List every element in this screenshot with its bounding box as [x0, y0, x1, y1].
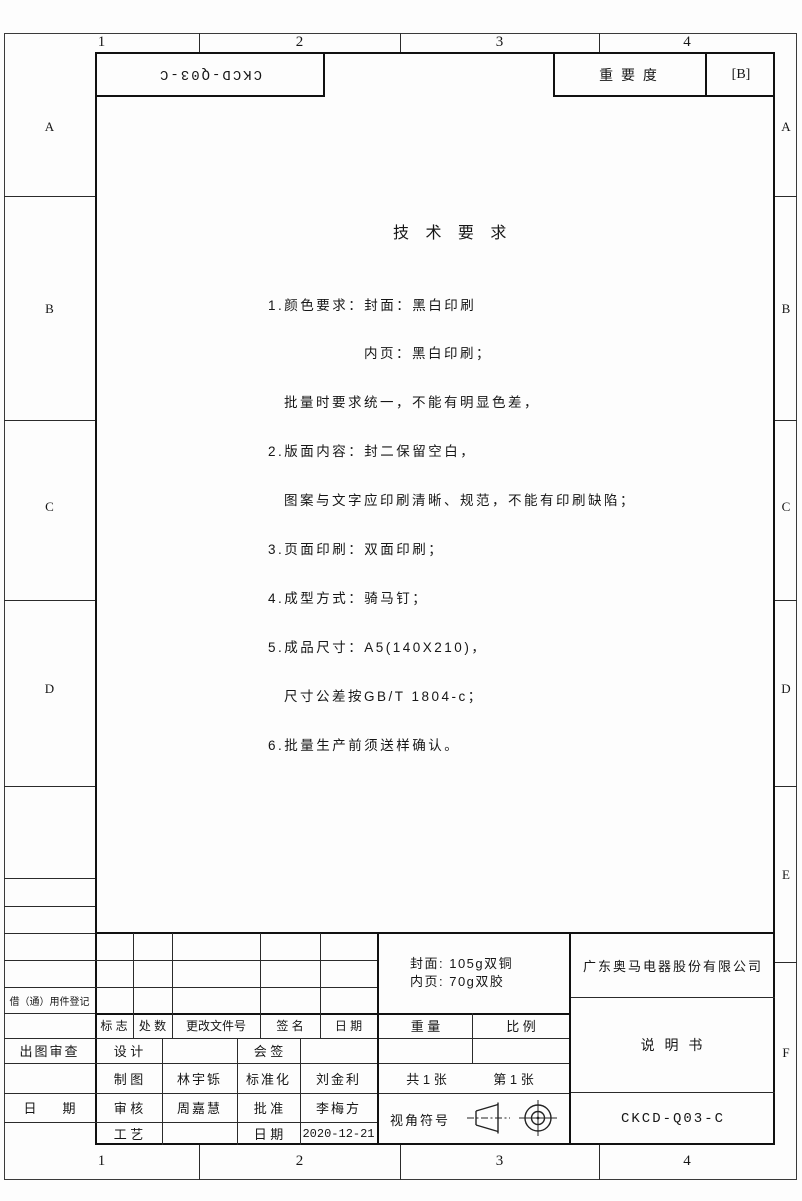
rev-col-sign: 签 名 — [260, 1013, 320, 1038]
scale-label: 比 例 — [473, 1013, 569, 1038]
rev-col-docno: 更改文件号 — [172, 1013, 260, 1038]
tech-line: 4.成型方式：骑马钉； — [268, 591, 636, 607]
standardize-label: 标准化 — [237, 1063, 300, 1093]
grid-line — [775, 420, 797, 421]
tech-line: 尺寸公差按GB/T 1804-c； — [268, 689, 636, 705]
design-signature — [162, 1038, 237, 1063]
countersign-signature — [300, 1038, 377, 1063]
grid-line — [4, 906, 95, 907]
grid-line — [4, 600, 95, 601]
zone-number-top: 2 — [199, 33, 400, 52]
zone-number-bottom: 4 — [599, 1145, 775, 1177]
rev-col-date: 日 期 — [320, 1013, 377, 1038]
paper-cover-spec: 封面: 105g双铜 — [410, 955, 513, 973]
grid-line — [4, 1013, 95, 1014]
zone-letter-right: F — [775, 1044, 797, 1062]
process-signature — [162, 1122, 237, 1145]
grid-line — [775, 786, 797, 787]
zone-number-bottom: 3 — [400, 1145, 599, 1177]
document-title: 说 明 书 — [571, 997, 775, 1092]
tech-line: 5.成品尺寸：A5(140X210)， — [268, 640, 636, 656]
drawing-sheet: 1 2 3 4 1 2 3 4 A B C D 借（通）用件登记 出图审查 日 … — [0, 0, 802, 1201]
grid-line — [775, 600, 797, 601]
grid-line — [377, 933, 379, 1145]
zone-number-top: 1 — [4, 33, 199, 52]
rev-col-count: 处 数 — [133, 1013, 172, 1038]
tech-line: 3.页面印刷：双面印刷； — [268, 542, 636, 558]
importance-label: 重 要 度 — [553, 52, 705, 97]
countersign-label: 会 签 — [237, 1038, 300, 1063]
check-signature: 周嘉慧 — [162, 1093, 237, 1122]
tech-line: 图案与文字应印刷清晰、规范，不能有印刷缺陷； — [268, 493, 636, 509]
zone-number-top: 3 — [400, 33, 599, 52]
paper-inner-spec: 内页: 70g双胶 — [410, 973, 504, 991]
process-label: 工 艺 — [95, 1122, 162, 1145]
grid-line — [4, 960, 95, 961]
inverted-doc-code: CKCD-Q03-C — [95, 52, 325, 97]
weight-label: 重 量 — [379, 1013, 472, 1038]
zone-letter-right: E — [775, 866, 797, 884]
draft-signature: 林宇铄 — [162, 1063, 237, 1093]
grid-line — [775, 962, 797, 963]
company-name: 广东奥马电器股份有限公司 — [571, 933, 775, 997]
document-code: CKCD-Q03-C — [571, 1092, 775, 1145]
grid-line — [95, 960, 377, 961]
approve-signature: 李梅方 — [300, 1093, 377, 1122]
zone-letter-right: C — [775, 498, 797, 516]
tech-line: 内页：黑白印刷； — [268, 346, 636, 362]
check-label: 审 核 — [95, 1093, 162, 1122]
tech-line: 1.颜色要求：封面：黑白印刷 — [268, 298, 636, 314]
grid-line — [4, 420, 95, 421]
tech-line: 批量时要求统一，不能有明显色差， — [268, 395, 636, 411]
tech-requirements-title: 技 术 要 求 — [393, 219, 512, 243]
design-label: 设 计 — [95, 1038, 162, 1063]
grid-line — [4, 933, 95, 934]
zone-letter-right: D — [775, 680, 797, 698]
grid-line — [4, 1063, 95, 1064]
zone-letter-right: B — [775, 300, 797, 318]
borrow-parts-register-label: 借（通）用件登记 — [4, 987, 95, 1013]
date-value: 2020-12-21 — [300, 1122, 377, 1145]
zone-letter-right: A — [775, 118, 797, 136]
sheet-number: 第 1 张 — [466, 1063, 561, 1093]
date-margin-label: 日 期 — [4, 1093, 95, 1122]
grid-line — [4, 196, 95, 197]
grid-line — [4, 1122, 95, 1123]
view-symbol-label: 视角符号 — [390, 1093, 470, 1145]
date-label: 日 期 — [237, 1122, 300, 1145]
tech-line: 6.批量生产前须送样确认。 — [268, 738, 636, 754]
zone-letter-left: A — [4, 118, 95, 136]
zone-number-top: 4 — [599, 33, 775, 52]
tech-requirements-body: 1.颜色要求：封面：黑白印刷 内页：黑白印刷； 批量时要求统一，不能有明显色差，… — [268, 265, 636, 787]
zone-number-bottom: 2 — [199, 1145, 400, 1177]
grid-line — [4, 878, 95, 879]
grid-line — [4, 786, 95, 787]
plot-review-label: 出图审查 — [4, 1038, 95, 1063]
standardize-signature: 刘金利 — [300, 1063, 377, 1093]
zone-letter-left: D — [4, 680, 95, 698]
grid-line — [95, 987, 377, 988]
grid-line — [775, 196, 797, 197]
rev-col-mark: 标 志 — [95, 1013, 133, 1038]
zone-letter-left: B — [4, 300, 95, 318]
zone-letter-left: C — [4, 498, 95, 516]
sheets-total: 共 1 张 — [379, 1063, 474, 1093]
zone-number-bottom: 1 — [4, 1145, 199, 1177]
draft-label: 制 图 — [95, 1063, 162, 1093]
paper-spec: 封面: 105g双铜 内页: 70g双胶 — [410, 933, 569, 1013]
first-angle-projection-target-icon — [518, 1099, 558, 1137]
importance-value: [B] — [707, 52, 775, 97]
tech-line: 2.版面内容：封二保留空白， — [268, 444, 636, 460]
approve-label: 批 准 — [237, 1093, 300, 1122]
first-angle-projection-cone-icon — [466, 1100, 512, 1136]
